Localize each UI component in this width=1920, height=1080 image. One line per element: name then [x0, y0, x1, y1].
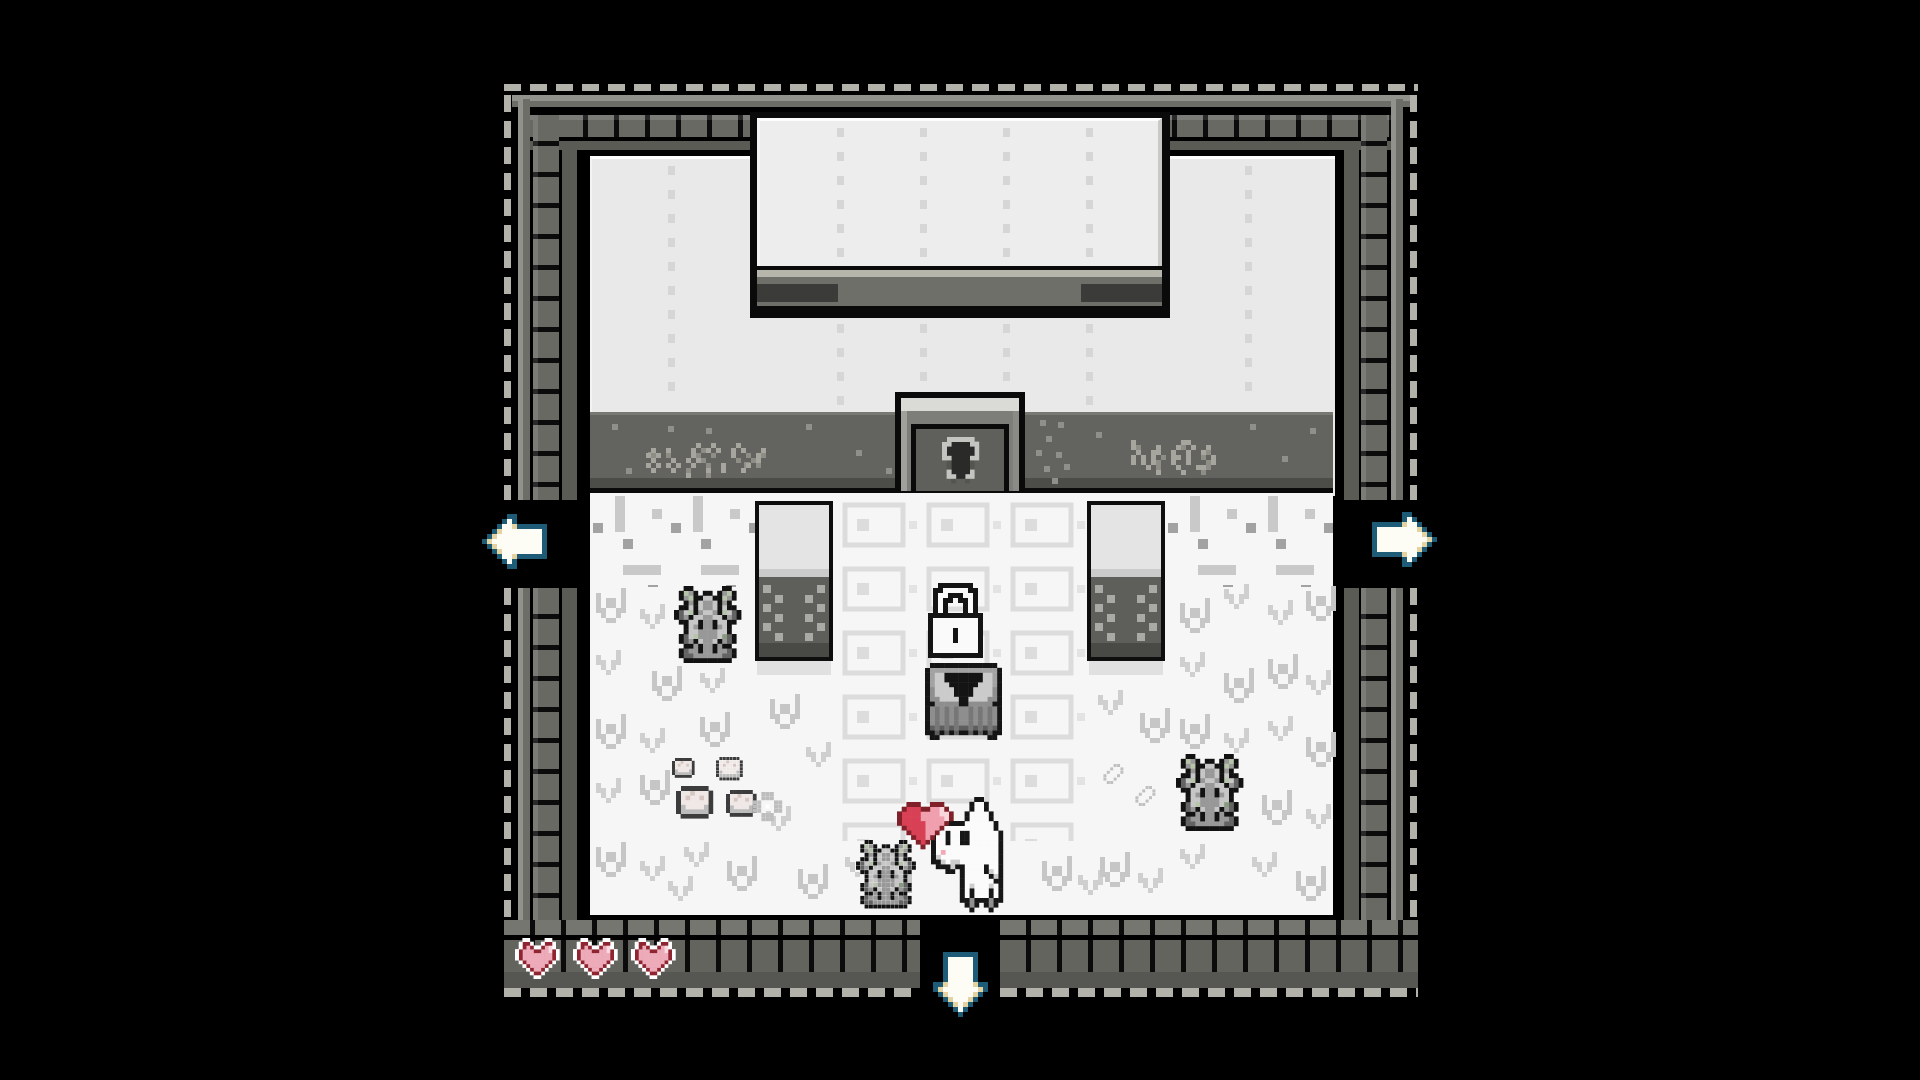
- frame-bottom-dashes: [504, 988, 920, 997]
- frame-right-band: [1391, 588, 1403, 920]
- statue-gargoyle-left: [674, 586, 679, 591]
- frame-right-strip: [1344, 588, 1359, 920]
- pillar-rivets: [1149, 585, 1157, 641]
- entrance-door[interactable]: [895, 392, 1025, 497]
- wall-dotted-seam: [920, 324, 927, 390]
- porch-speckle: [612, 424, 618, 430]
- porch-speckle: [1046, 436, 1052, 442]
- exit-arrow-left[interactable]: [482, 514, 487, 519]
- pillar-base: [1091, 643, 1161, 657]
- grass-tuft: [700, 590, 705, 595]
- grass-tuft: [770, 694, 775, 699]
- sill-handle-left: [757, 284, 838, 302]
- frame-left-upper: [504, 95, 590, 500]
- grass-tuft: [1268, 716, 1273, 721]
- porch-speckle: [1310, 428, 1316, 434]
- grass-tuft: [700, 668, 705, 673]
- grass-tuft: [596, 588, 601, 593]
- grass-tuft: [1296, 866, 1301, 871]
- grass-tuft: [798, 864, 803, 869]
- porch-speckle: [1250, 424, 1256, 430]
- door-lintel: [901, 398, 1019, 411]
- grass-tuft: [596, 650, 601, 655]
- shop-window: [757, 118, 1162, 266]
- pillar-top: [759, 505, 829, 569]
- exit-arrow-down[interactable]: [933, 952, 938, 957]
- porch-speckle: [1064, 464, 1070, 470]
- frame-bottom-band: [1000, 972, 1418, 988]
- pillar-rivets: [1095, 585, 1103, 641]
- porch-speckle: [706, 428, 712, 434]
- pot-large: [676, 786, 681, 791]
- pillar-left-shadow: [757, 661, 831, 675]
- statue-gargoyle-companion: [856, 840, 860, 844]
- porch-speckle: [806, 424, 812, 430]
- frame-left-dashes: [504, 95, 511, 500]
- wall-dotted-seam: [837, 324, 844, 406]
- frame-bottom-right: [1000, 912, 1418, 1002]
- grass-tuft: [640, 856, 645, 861]
- grass-tuft: [640, 728, 645, 733]
- porch-speckle: [1282, 456, 1288, 462]
- frame-left-bricks: [533, 115, 559, 500]
- exit-arrow-right[interactable]: [1372, 512, 1377, 517]
- sill-top: [757, 270, 1162, 277]
- floor-pattern-dots-left: [590, 493, 757, 587]
- floor-pattern-dots-right: [1165, 493, 1333, 587]
- grass-tuft: [1306, 732, 1311, 737]
- frame-bottom-left: [504, 912, 920, 1002]
- grass-tuft: [640, 604, 645, 609]
- pot-large: [726, 790, 730, 794]
- frame-bottom-bricktops: [504, 920, 920, 935]
- frame-top-dashes: [504, 84, 1418, 91]
- pillar-top: [1091, 505, 1161, 569]
- pot-small: [716, 757, 719, 760]
- frame-left-lower: [504, 588, 590, 920]
- grass-tuft: [684, 842, 689, 847]
- grass-tuft: [1268, 600, 1273, 605]
- grass-tuft: [1306, 670, 1311, 675]
- grass-tuft: [882, 868, 887, 873]
- player-character: [931, 797, 936, 802]
- pillar-rivets: [817, 585, 825, 641]
- grass-tuft: [1252, 852, 1257, 857]
- frame-bottom-bricks: [1000, 940, 1418, 972]
- pillar-rivets: [1107, 595, 1115, 641]
- grass-tuft: [766, 806, 771, 811]
- grass-tuft: [596, 778, 601, 783]
- frame-left-band: [518, 99, 530, 500]
- window-sill: [757, 270, 1162, 306]
- porch-speckle: [1056, 452, 1062, 458]
- porch-speckle: [1040, 420, 1046, 426]
- porch-speckle: [1052, 478, 1058, 484]
- frame-right-dashes: [1410, 95, 1417, 500]
- grass-tuft: [1224, 728, 1229, 733]
- pillar-band: [1091, 569, 1161, 577]
- wall-dotted-seam: [920, 128, 927, 268]
- grass-tuft: [596, 842, 601, 847]
- statue-gargoyle-right: [1176, 754, 1181, 759]
- frame-bottom-dashes: [1000, 988, 1418, 997]
- pillar-rivets: [1137, 595, 1145, 641]
- grass-tuft: [1180, 844, 1185, 849]
- frame-left-bricks: [533, 588, 559, 920]
- frame-right-bricks: [1361, 588, 1387, 920]
- wall-dotted-seam: [1003, 128, 1010, 268]
- pillar-right: [1087, 501, 1165, 661]
- grass-tuft: [1140, 708, 1145, 713]
- pillar-rivets: [775, 595, 783, 641]
- grass-tuft: [1180, 714, 1185, 719]
- porch-speckle: [744, 462, 750, 468]
- frame-left-band: [518, 588, 530, 920]
- porch-speckle: [648, 452, 654, 458]
- porch-speckle: [1036, 450, 1042, 456]
- sign-runes-right: [1126, 440, 1131, 445]
- pot-small: [672, 758, 675, 761]
- hud-heart-icon: [573, 938, 577, 942]
- grass-tuft: [1262, 790, 1267, 795]
- frame-right-lower: [1332, 588, 1418, 920]
- wall-dotted-seam: [1245, 166, 1252, 406]
- wall-dotted-seam: [1086, 324, 1093, 406]
- grass-tuft: [1268, 654, 1273, 659]
- pillar-base: [759, 643, 829, 657]
- door-panel: [916, 429, 1004, 491]
- pillar-rivets: [763, 585, 771, 641]
- grass-tuft: [1306, 804, 1311, 809]
- pillar-rivets: [805, 595, 813, 641]
- grass-tuft: [640, 770, 645, 775]
- porch-speckle: [1058, 422, 1064, 428]
- frame-left-strip: [562, 141, 577, 500]
- wall-dotted-seam: [1003, 324, 1010, 390]
- frame-right-bricks: [1361, 115, 1387, 500]
- wall-dotted-seam: [668, 166, 675, 406]
- grass-tuft: [1138, 868, 1143, 873]
- frame-bottom-bricktops: [1000, 920, 1418, 935]
- wall-dotted-seam: [837, 128, 844, 268]
- grass-tuft: [727, 856, 732, 861]
- sign-runes-left: [646, 443, 651, 448]
- grass-tuft: [1224, 668, 1229, 673]
- grass-tuft: [1306, 586, 1311, 591]
- porch-speckle: [668, 426, 674, 432]
- grass-tuft: [845, 852, 850, 857]
- frame-right-strip: [1344, 141, 1359, 500]
- frame-right-band: [1391, 99, 1403, 500]
- game-screen: [0, 0, 1920, 1080]
- grass-tuft: [1100, 852, 1105, 857]
- frame-left-dashes: [504, 588, 511, 920]
- treasure-chest[interactable]: [925, 663, 930, 668]
- frame-right-upper: [1332, 95, 1418, 500]
- porch-speckle: [1096, 432, 1102, 438]
- pillar-left: [755, 501, 833, 661]
- sill-handle-right: [1081, 284, 1162, 302]
- padlock-icon: [928, 583, 933, 588]
- door-keyhole-icon: [942, 437, 947, 442]
- feather-leaf: [1132, 786, 1135, 789]
- grass-tuft: [1180, 652, 1185, 657]
- grass-tuft: [1224, 584, 1229, 589]
- wall-dotted-seam: [1086, 128, 1093, 268]
- hud-heart-icon: [631, 938, 635, 942]
- frame-bottom-bricks: [504, 940, 920, 972]
- grass-tuft: [652, 666, 657, 671]
- porch-speckle: [1044, 466, 1050, 472]
- porch-speckle: [856, 450, 862, 456]
- hud-heart-icon: [515, 938, 519, 942]
- grass-tuft: [1180, 598, 1185, 603]
- pillar-right-shadow: [1089, 661, 1163, 675]
- frame-left-strip: [562, 588, 577, 920]
- frame-right-dashes: [1410, 588, 1417, 920]
- heart-bubble: [897, 802, 902, 807]
- grass-tuft: [806, 742, 811, 747]
- porch-speckle: [886, 468, 892, 474]
- grass-tuft: [1042, 856, 1047, 861]
- pillar-band: [759, 569, 829, 577]
- feather-leaf: [1100, 764, 1103, 767]
- grass-tuft: [668, 876, 673, 881]
- flower-clover: [753, 792, 757, 796]
- shop-window-frame: [750, 112, 1170, 318]
- floor-pattern-panels-center: [833, 493, 1087, 841]
- porch-speckle: [626, 468, 632, 474]
- grass-tuft: [596, 714, 601, 719]
- frame-bottom-band: [504, 972, 920, 988]
- grass-tuft: [700, 712, 705, 717]
- grass-tuft: [1078, 870, 1083, 875]
- grass-tuft: [1098, 690, 1103, 695]
- frame-top-band: [512, 95, 1410, 107]
